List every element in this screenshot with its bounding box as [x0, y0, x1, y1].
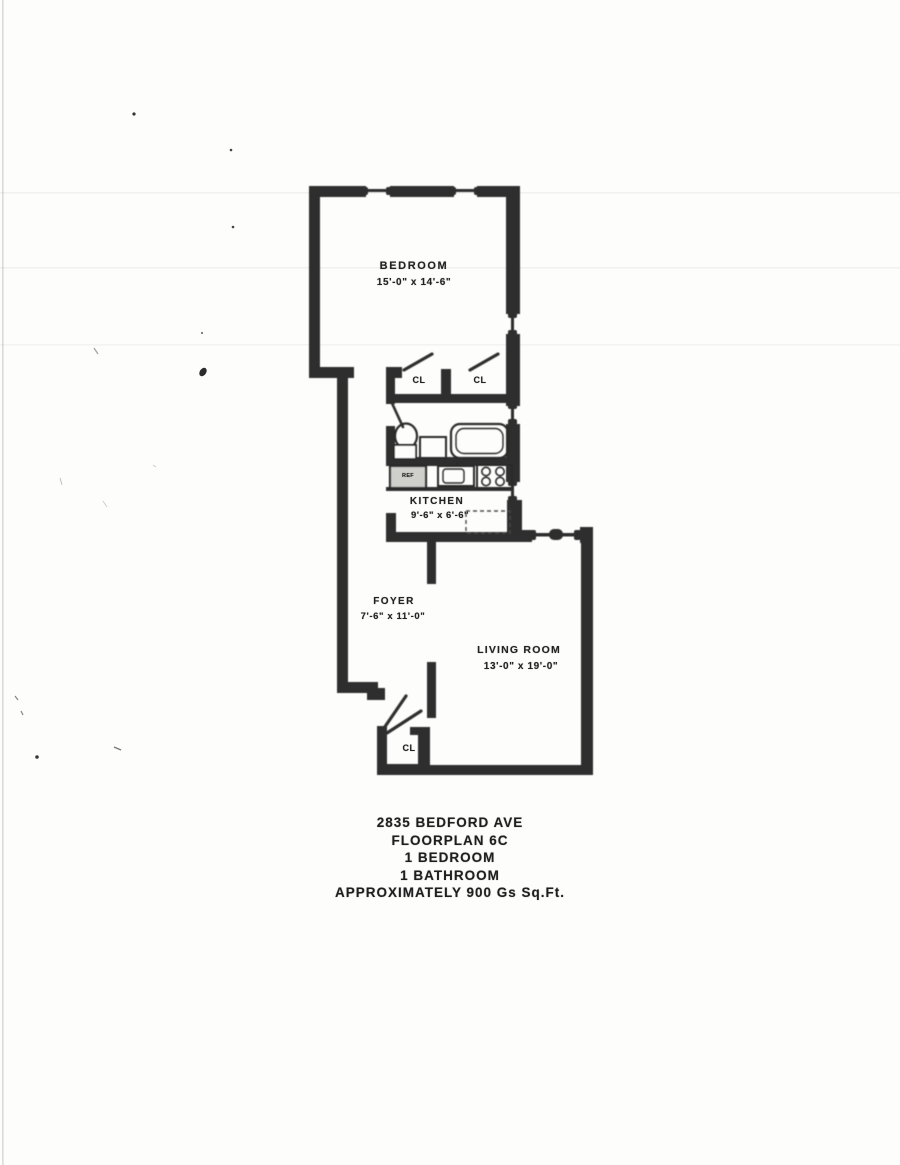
- caption-block: 2835 BEDFORD AVE FLOORPLAN 6C 1 BEDROOM …: [335, 814, 565, 902]
- foyer-label: FOYER: [373, 597, 414, 607]
- entry-closet-label: CL: [403, 744, 416, 753]
- kitchen-label: KITCHEN: [410, 497, 464, 507]
- scan-artifacts: [0, 0, 900, 1165]
- window-icon: [508, 312, 517, 336]
- caption-area: APPROXIMATELY 900 Gs Sq.Ft.: [335, 884, 565, 902]
- living-room-dimensions: 13'-0" x 19'-0": [484, 662, 558, 672]
- window-icon: [450, 187, 480, 195]
- walls: [309, 186, 593, 775]
- caption-address: 2835 BEDFORD AVE: [335, 814, 565, 832]
- bedroom-dimensions: 15'-0" x 14'-6": [377, 278, 451, 288]
- closet-label-1: CL: [413, 376, 426, 385]
- scanned-floorplan-page: BEDROOM 15'-0" x 14'-6" CL CL REF KITCHE…: [0, 0, 900, 1165]
- entry-door-swing-icon: [382, 696, 406, 731]
- door-swings: [382, 354, 498, 733]
- window-icon: [529, 529, 581, 540]
- floorplan-drawing: [0, 0, 900, 1165]
- kitchen-dimensions: 9'-6" x 6'-6": [411, 511, 469, 521]
- bedroom-label: BEDROOM: [380, 261, 449, 272]
- caption-bedrooms: 1 BEDROOM: [335, 849, 565, 867]
- foyer-dimensions: 7'-6" x 11'-0": [361, 612, 426, 622]
- toilet-tank-icon: [394, 445, 416, 459]
- dashed-counter-icon: [466, 511, 510, 533]
- window-icon: [508, 403, 517, 425]
- bathroom-fixtures: [394, 424, 508, 460]
- caption-bathrooms: 1 BATHROOM: [335, 867, 565, 885]
- closet2-door-swing-icon: [470, 354, 498, 370]
- kitchen-sink-icon: [438, 462, 474, 486]
- bathroom-sink-icon: [420, 437, 446, 458]
- bathroom-door-swing-icon: [391, 401, 403, 427]
- closet1-door-swing-icon: [404, 354, 432, 370]
- caption-plan-name: FLOORPLAN 6C: [335, 832, 565, 850]
- bathtub-icon: [451, 424, 508, 458]
- window-icon: [362, 187, 392, 195]
- closet-label-2: CL: [474, 376, 487, 385]
- living-room-label: LIVING ROOM: [477, 645, 561, 656]
- refrigerator-label: REF: [402, 474, 414, 480]
